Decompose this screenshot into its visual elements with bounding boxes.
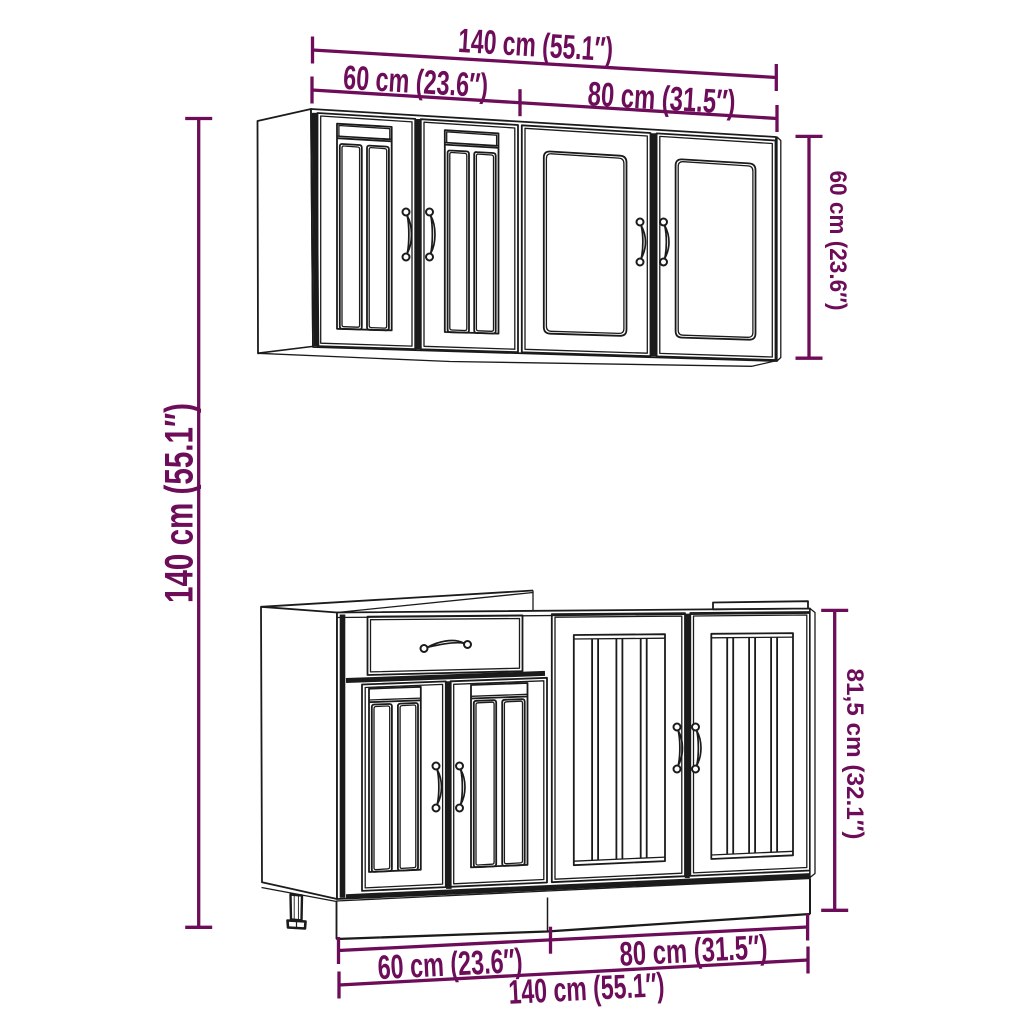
svg-text:60 cm (23.6″): 60 cm (23.6″) — [824, 171, 851, 311]
svg-text:81,5 cm (32.1″): 81,5 cm (32.1″) — [841, 669, 868, 840]
svg-text:140 cm (55.1″): 140 cm (55.1″) — [508, 966, 666, 1012]
svg-text:140 cm (55.1″): 140 cm (55.1″) — [158, 403, 202, 603]
